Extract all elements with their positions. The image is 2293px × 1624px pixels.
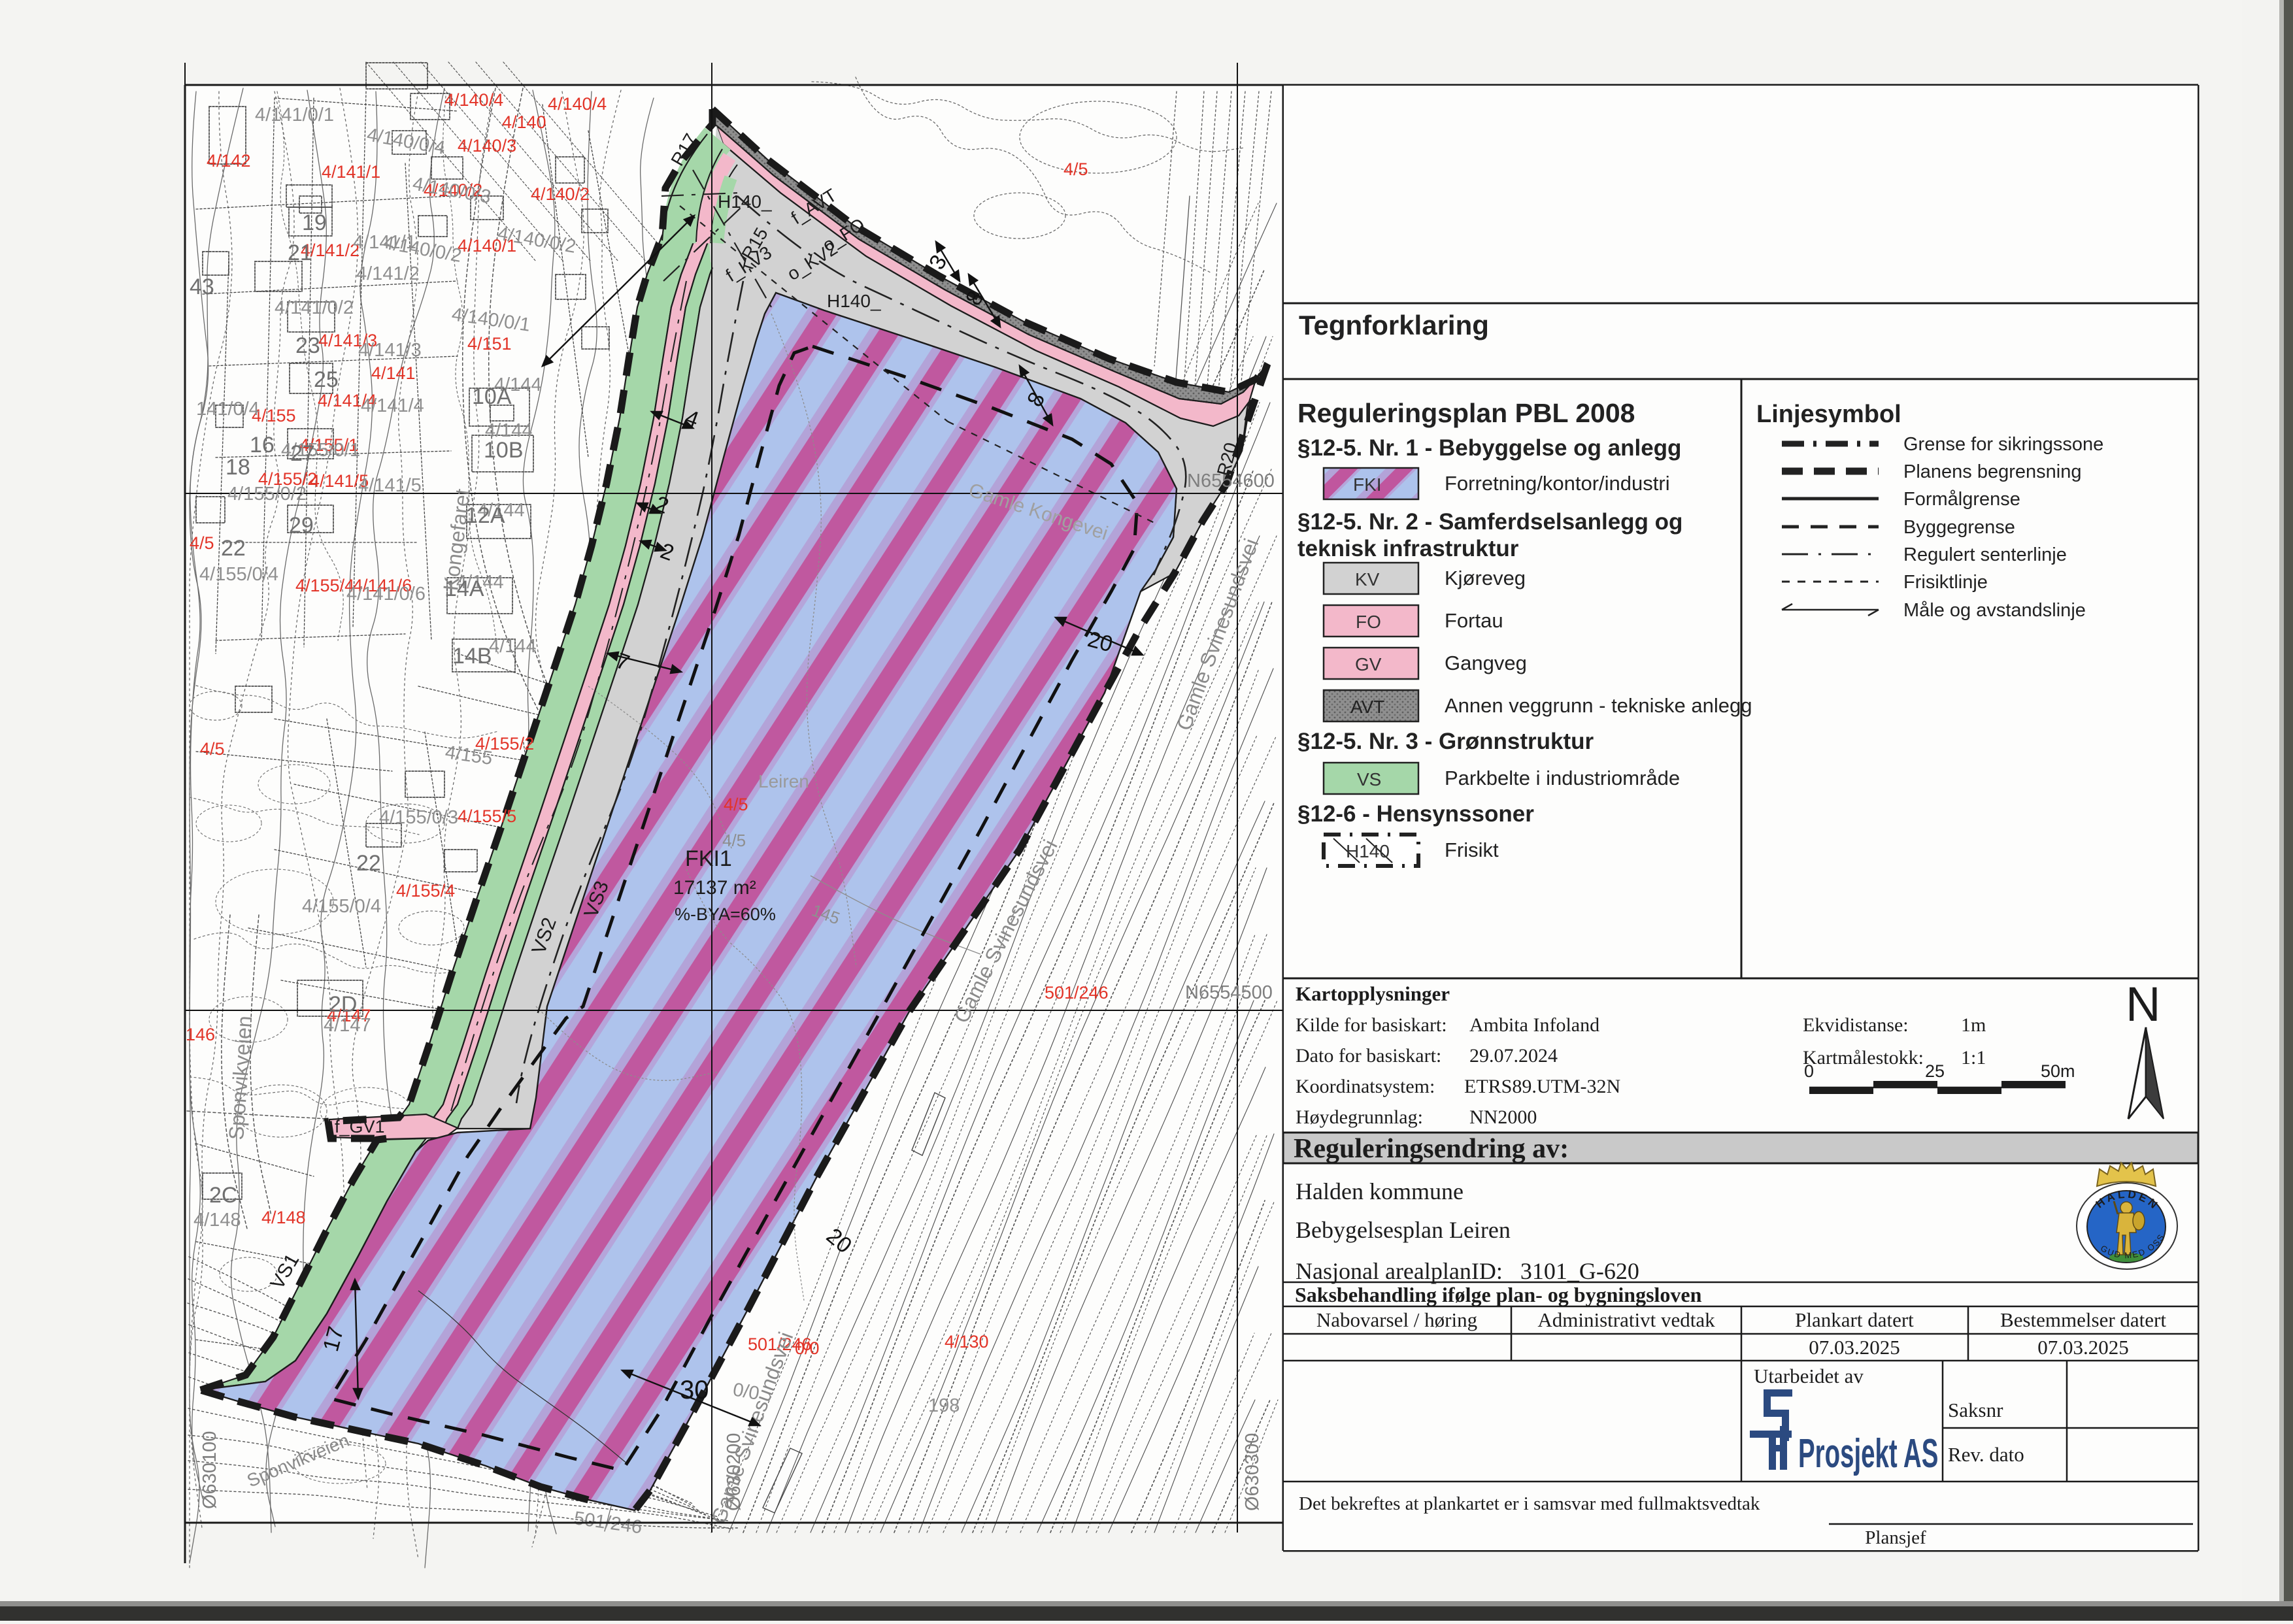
svg-text:Bestemmelser datert: Bestemmelser datert — [2000, 1308, 2166, 1331]
svg-text:29: 29 — [289, 513, 314, 538]
svg-text:Saksnr: Saksnr — [1948, 1399, 2003, 1421]
svg-text:4/155/0/2: 4/155/0/2 — [227, 484, 307, 505]
svg-text:Kartopplysninger: Kartopplysninger — [1296, 982, 1450, 1005]
svg-text:Byggegrense: Byggegrense — [1903, 517, 2015, 538]
svg-text:Forretning/kontor/industri: Forretning/kontor/industri — [1445, 472, 1670, 495]
svg-text:§12-5. Nr. 2 - Samferdselsanle: §12-5. Nr. 2 - Samferdselsanlegg og — [1297, 509, 1682, 535]
svg-text:4/141/3: 4/141/3 — [358, 340, 422, 361]
svg-text:4/140/3: 4/140/3 — [458, 136, 516, 156]
svg-text:2D: 2D — [329, 992, 357, 1017]
svg-text:Grense for sikringssone: Grense for sikringssone — [1903, 434, 2103, 455]
svg-text:27: 27 — [290, 441, 315, 466]
svg-text:4/148: 4/148 — [261, 1208, 306, 1227]
svg-text:Plansjef: Plansjef — [1865, 1527, 1926, 1548]
svg-text:Reguleringsplan PBL 2008: Reguleringsplan PBL 2008 — [1297, 398, 1635, 428]
svg-text:KV: KV — [1355, 569, 1380, 589]
svg-text:25: 25 — [1925, 1061, 1945, 1081]
svg-text:4/155/4: 4/155/4 — [396, 881, 455, 901]
svg-text:Fortau: Fortau — [1445, 609, 1503, 632]
svg-text:Det bekreftes at plankartet er: Det bekreftes at plankartet er i samsvar… — [1299, 1493, 1760, 1514]
svg-text:H140: H140 — [1346, 841, 1390, 861]
svg-text:Ambita Infoland: Ambita Infoland — [1469, 1014, 1599, 1036]
svg-text:22: 22 — [221, 536, 246, 561]
svg-text:Nabovarsel / høring: Nabovarsel / høring — [1316, 1308, 1477, 1331]
svg-text:Kilde for basiskart:: Kilde for basiskart: — [1296, 1014, 1447, 1036]
svg-text:Frisikt: Frisikt — [1445, 838, 1499, 861]
svg-text:VS: VS — [1357, 769, 1381, 789]
svg-text:1m: 1m — [1961, 1014, 1986, 1036]
svg-text:4/141: 4/141 — [371, 363, 416, 383]
svg-text:Kartmålestokk:: Kartmålestokk: — [1803, 1047, 1924, 1069]
svg-text:4/140/4: 4/140/4 — [548, 94, 607, 114]
svg-text:4/148: 4/148 — [193, 1210, 241, 1231]
svg-text:4/141/1: 4/141/1 — [322, 162, 380, 182]
svg-text:4/141/0/6: 4/141/0/6 — [346, 584, 426, 605]
svg-text:0/0: 0/0 — [795, 1338, 820, 1358]
svg-text:146: 146 — [186, 1025, 215, 1044]
svg-text:Linjesymbol: Linjesymbol — [1756, 401, 1901, 428]
svg-text:4/155/5: 4/155/5 — [458, 806, 516, 826]
svg-text:4/140: 4/140 — [502, 112, 546, 132]
svg-text:Planens begrensning: Planens begrensning — [1903, 461, 2081, 482]
svg-text:Plankart datert: Plankart datert — [1795, 1308, 1914, 1331]
svg-text:43: 43 — [190, 274, 214, 299]
svg-text:14B: 14B — [452, 644, 492, 669]
svg-text:4/142: 4/142 — [207, 151, 251, 171]
svg-text:Koordinatsystem:: Koordinatsystem: — [1296, 1076, 1435, 1097]
svg-text:H140_: H140_ — [827, 291, 881, 311]
svg-text:30: 30 — [680, 1376, 709, 1404]
svg-text:Ø630100: Ø630100 — [199, 1431, 220, 1509]
svg-text:Saksbehandling ifølge plan- og: Saksbehandling ifølge plan- og bygningsl… — [1295, 1283, 1702, 1306]
svg-text:Annen veggrunn - tekniske anle: Annen veggrunn - tekniske anlegg — [1445, 694, 1752, 717]
svg-text:10B: 10B — [484, 438, 524, 463]
svg-text:4/155/0/3: 4/155/0/3 — [379, 807, 458, 828]
svg-text:Gangveg: Gangveg — [1445, 652, 1527, 674]
svg-text:%-BYA=60%: %-BYA=60% — [675, 904, 776, 924]
svg-text:4/5: 4/5 — [190, 533, 214, 553]
svg-text:4/5: 4/5 — [1063, 159, 1088, 179]
svg-text:19: 19 — [302, 210, 327, 235]
svg-text:N6554500: N6554500 — [1185, 982, 1273, 1003]
svg-text:Ø630300: Ø630300 — [1242, 1433, 1263, 1511]
svg-text:Nasjonal arealplanID: 3101_G: Nasjonal arealplanID: 3101_G-620 — [1296, 1258, 1639, 1284]
svg-text:4/141/4: 4/141/4 — [361, 395, 424, 416]
svg-text:Høydegrunnlag:: Høydegrunnlag: — [1296, 1106, 1423, 1128]
svg-text:50m: 50m — [2041, 1061, 2075, 1081]
svg-text:198: 198 — [928, 1395, 960, 1416]
svg-text:4/130: 4/130 — [945, 1332, 989, 1351]
svg-text:25: 25 — [314, 367, 339, 392]
svg-text:§12-5. Nr. 1 - Bebyggelse og a: §12-5. Nr. 1 - Bebyggelse og anlegg — [1297, 435, 1681, 461]
svg-text:Kjøreveg: Kjøreveg — [1445, 567, 1526, 589]
svg-text:f_GV1: f_GV1 — [335, 1117, 385, 1136]
svg-text:teknisk infrastruktur: teknisk infrastruktur — [1297, 536, 1519, 561]
svg-text:Bebygelsesplan Leiren: Bebygelsesplan Leiren — [1296, 1217, 1511, 1243]
svg-text:4/155/0/4: 4/155/0/4 — [302, 896, 381, 917]
svg-text:FO: FO — [1356, 612, 1381, 632]
svg-text:Parkbelte i industriområde: Parkbelte i industriområde — [1445, 767, 1680, 789]
svg-text:AVT: AVT — [1350, 697, 1384, 717]
svg-text:Formålgrense: Formålgrense — [1903, 489, 2020, 510]
svg-text:22: 22 — [356, 851, 381, 876]
svg-text:29.07.2024: 29.07.2024 — [1469, 1045, 1558, 1067]
svg-text:18: 18 — [226, 455, 250, 480]
svg-text:4/140/2: 4/140/2 — [531, 184, 590, 204]
svg-text:1:1: 1:1 — [1961, 1047, 1986, 1069]
svg-text:ETRS89.UTM-32N: ETRS89.UTM-32N — [1464, 1076, 1620, 1097]
svg-text:Prosjekt AS: Prosjekt AS — [1798, 1431, 1938, 1476]
svg-text:§12-5. Nr. 3 - Grønnstruktur: §12-5. Nr. 3 - Grønnstruktur — [1297, 729, 1594, 754]
svg-text:§12-6 - Hensynssoner: §12-6 - Hensynssoner — [1297, 801, 1534, 827]
svg-text:Reguleringsendring av:: Reguleringsendring av: — [1294, 1134, 1569, 1164]
svg-text:Tegnforklaring: Tegnforklaring — [1299, 310, 1489, 340]
svg-text:Regulert senterlinje: Regulert senterlinje — [1903, 544, 2067, 565]
svg-text:4/147: 4/147 — [324, 1015, 371, 1036]
svg-text:4/141/5: 4/141/5 — [358, 475, 422, 496]
svg-text:Ekvidistanse:: Ekvidistanse: — [1803, 1014, 1909, 1036]
svg-text:4/141/2: 4/141/2 — [356, 263, 420, 284]
svg-text:4/144: 4/144 — [489, 636, 537, 657]
svg-text:4/141/1: 4/141/1 — [353, 232, 416, 253]
svg-text:0: 0 — [1804, 1061, 1814, 1081]
svg-text:4/155/4: 4/155/4 — [295, 576, 354, 595]
svg-text:GV: GV — [1355, 654, 1382, 674]
svg-text:Utarbeidet av: Utarbeidet av — [1754, 1365, 1864, 1387]
svg-text:Rev. dato: Rev. dato — [1948, 1443, 2024, 1466]
svg-text:Halden kommune: Halden kommune — [1296, 1178, 1464, 1204]
svg-text:Dato for basiskart:: Dato for basiskart: — [1296, 1045, 1441, 1067]
svg-text:4/141/0/2: 4/141/0/2 — [275, 297, 354, 318]
svg-text:2C: 2C — [209, 1183, 237, 1208]
svg-text:4/151: 4/151 — [467, 334, 512, 354]
svg-text:4/5: 4/5 — [724, 795, 748, 814]
svg-text:4/5: 4/5 — [200, 739, 225, 759]
svg-text:4/141/0/1: 4/141/0/1 — [255, 105, 334, 125]
svg-text:17137 m²: 17137 m² — [673, 877, 756, 899]
svg-text:H140_: H140_ — [718, 191, 772, 212]
svg-text:07.03.2025: 07.03.2025 — [1809, 1336, 1900, 1359]
svg-text:23: 23 — [295, 333, 320, 358]
svg-text:Administrativt vedtak: Administrativt vedtak — [1537, 1308, 1715, 1331]
svg-text:4/155/0/4: 4/155/0/4 — [199, 564, 278, 585]
svg-text:501/246: 501/246 — [1045, 983, 1109, 1003]
svg-text:NN2000: NN2000 — [1469, 1106, 1537, 1128]
svg-text:10A: 10A — [472, 384, 512, 409]
svg-text:4/140/4: 4/140/4 — [444, 90, 503, 110]
svg-text:FKI: FKI — [1353, 474, 1382, 495]
svg-text:Måle og avstandslinje: Måle og avstandslinje — [1903, 600, 2086, 621]
svg-text:21: 21 — [288, 240, 312, 265]
svg-text:16: 16 — [250, 433, 275, 457]
svg-text:141/0/4: 141/0/4 — [196, 399, 259, 420]
svg-text:07.03.2025: 07.03.2025 — [2037, 1336, 2129, 1359]
svg-text:Frisiktlinje: Frisiktlinje — [1903, 572, 1988, 593]
svg-text:N: N — [2126, 977, 2160, 1031]
svg-text:4/5: 4/5 — [722, 831, 746, 850]
svg-text:Leiren: Leiren — [758, 771, 809, 791]
